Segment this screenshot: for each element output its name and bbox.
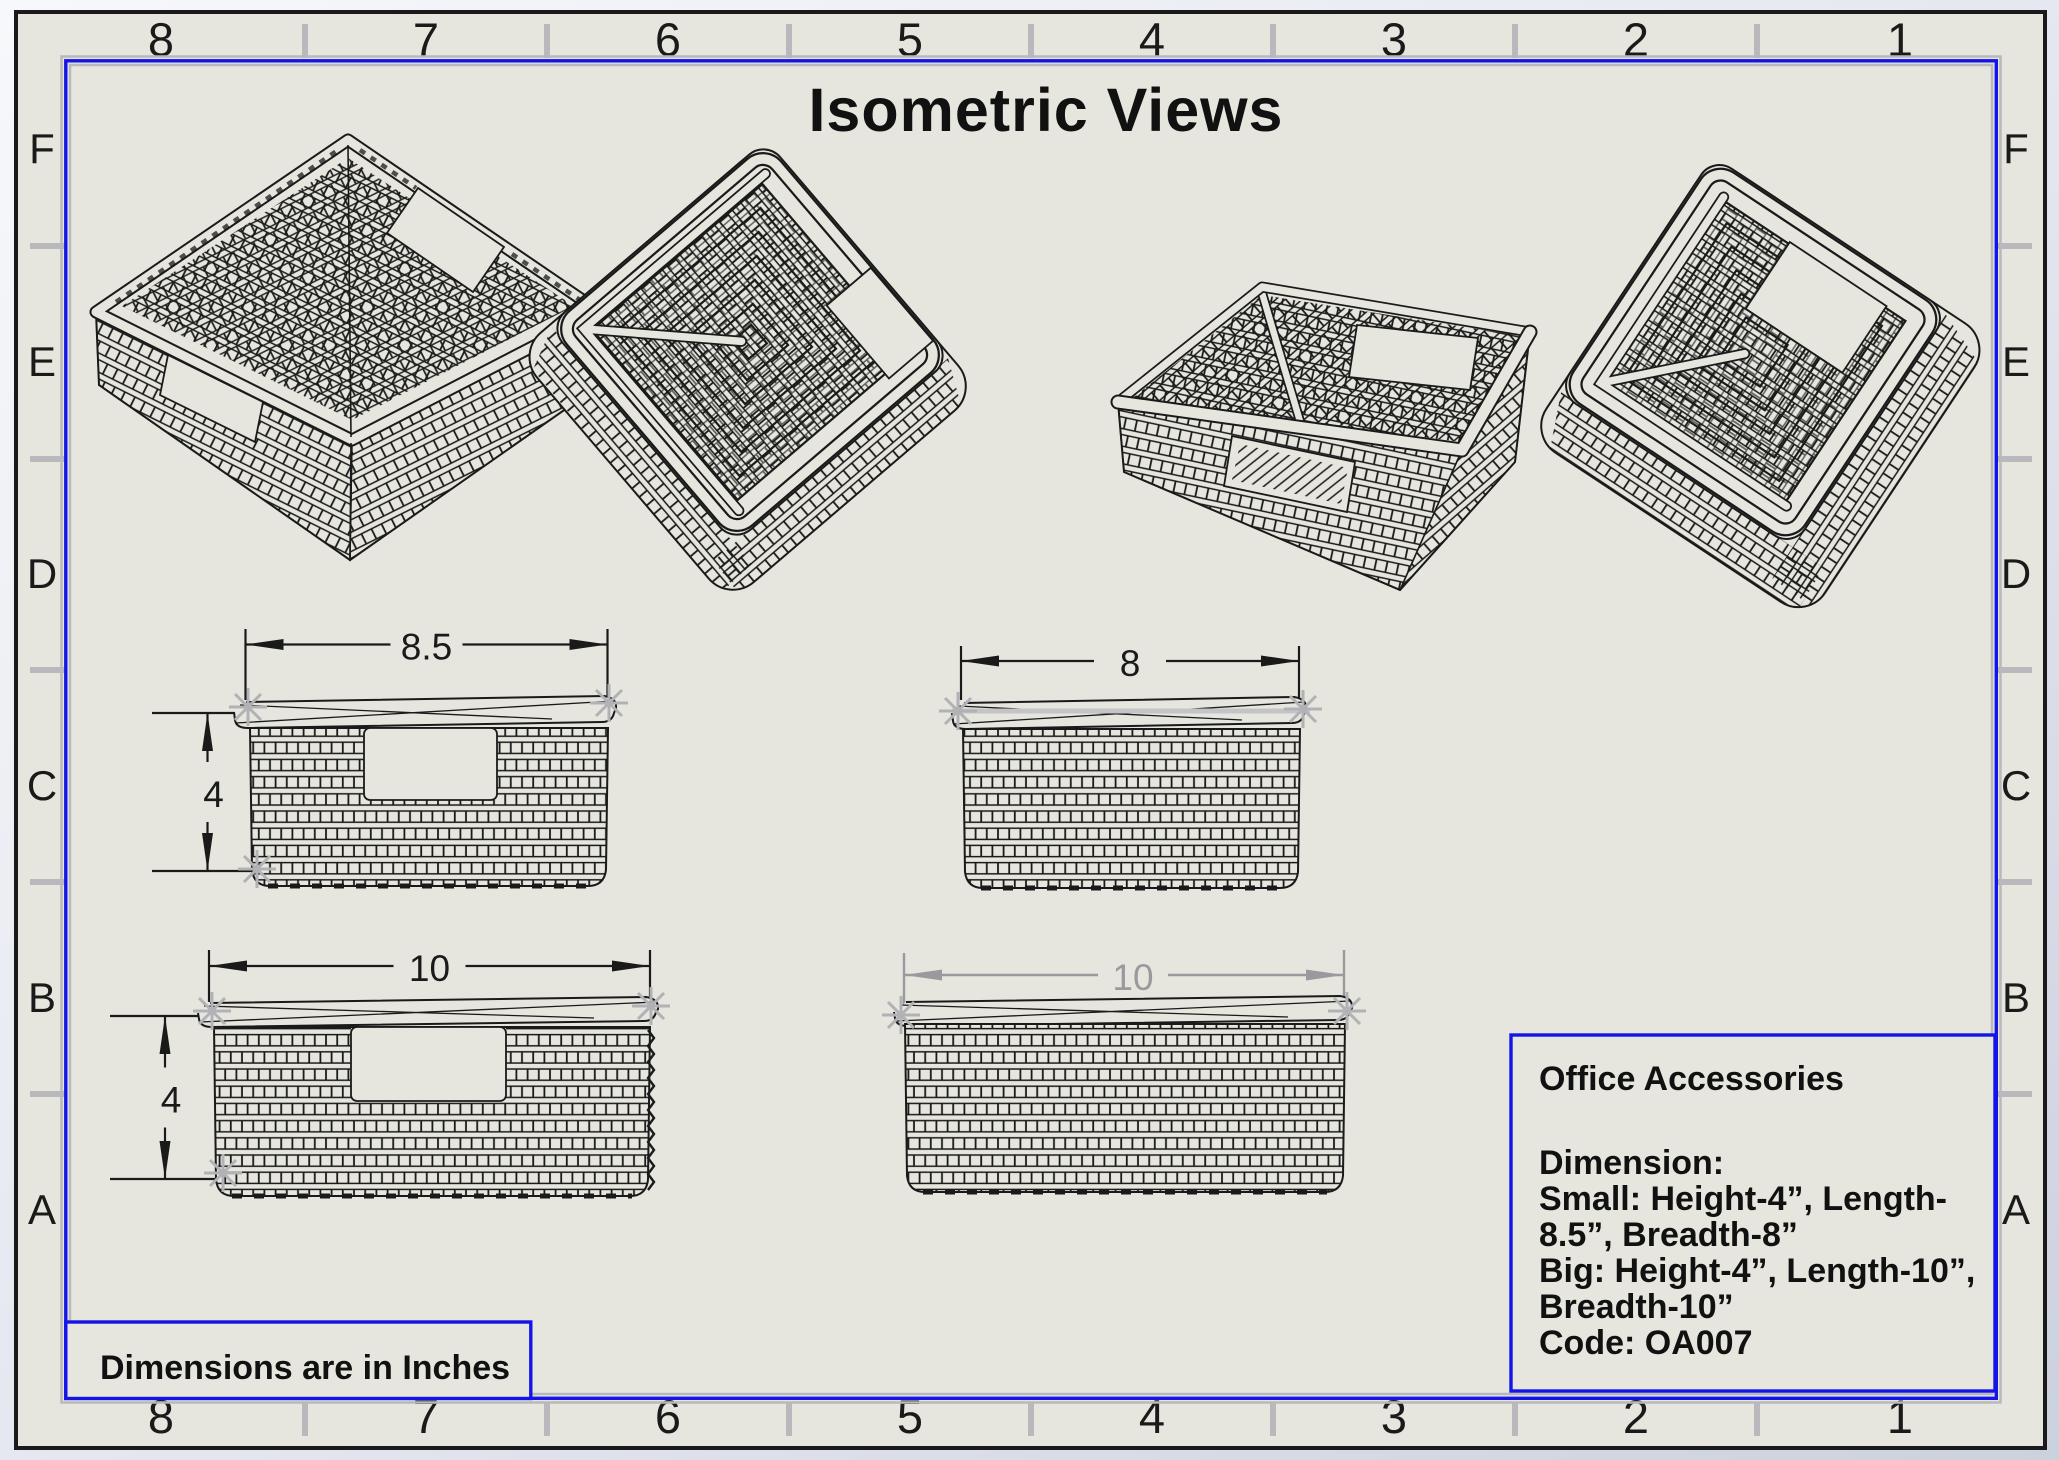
svg-text:Small: Height-4”, Length-: Small: Height-4”, Length- <box>1539 1180 1947 1218</box>
svg-text:B: B <box>2002 974 2030 1021</box>
svg-text:10: 10 <box>409 948 450 989</box>
svg-text:8: 8 <box>148 13 174 66</box>
svg-text:Dimension:: Dimension: <box>1539 1144 1724 1182</box>
svg-text:Big: Height-4”, Length-10”,: Big: Height-4”, Length-10”, <box>1539 1252 1975 1290</box>
svg-text:E: E <box>28 338 56 385</box>
svg-text:B: B <box>28 974 56 1021</box>
svg-text:8: 8 <box>1120 643 1141 684</box>
svg-text:4: 4 <box>161 1080 182 1121</box>
svg-text:C: C <box>27 762 57 809</box>
svg-text:8.5”, Breadth-8”: 8.5”, Breadth-8” <box>1539 1216 1798 1254</box>
svg-text:2: 2 <box>1623 13 1649 66</box>
svg-text:6: 6 <box>655 13 681 66</box>
svg-text:8.5: 8.5 <box>401 627 452 668</box>
svg-text:3: 3 <box>1381 13 1407 66</box>
svg-text:Dimensions are in Inches: Dimensions are in Inches <box>100 1349 510 1387</box>
svg-text:1: 1 <box>1887 13 1913 66</box>
svg-text:C: C <box>2001 762 2031 809</box>
svg-text:10: 10 <box>1112 957 1153 998</box>
svg-text:Breadth-10”: Breadth-10” <box>1539 1288 1734 1326</box>
svg-text:Isometric Views: Isometric Views <box>808 76 1283 144</box>
svg-text:F: F <box>2003 125 2029 172</box>
svg-text:F: F <box>29 125 55 172</box>
svg-text:D: D <box>2001 550 2031 597</box>
svg-text:5: 5 <box>897 13 923 66</box>
svg-text:Code: OA007: Code: OA007 <box>1539 1324 1753 1362</box>
svg-text:4: 4 <box>1139 13 1165 66</box>
svg-text:7: 7 <box>413 13 439 66</box>
svg-text:Office Accessories: Office Accessories <box>1539 1060 1844 1098</box>
svg-text:E: E <box>2002 338 2030 385</box>
svg-text:A: A <box>28 1186 56 1233</box>
svg-text:A: A <box>2002 1186 2030 1233</box>
svg-text:4: 4 <box>203 774 224 815</box>
svg-text:D: D <box>27 550 57 597</box>
